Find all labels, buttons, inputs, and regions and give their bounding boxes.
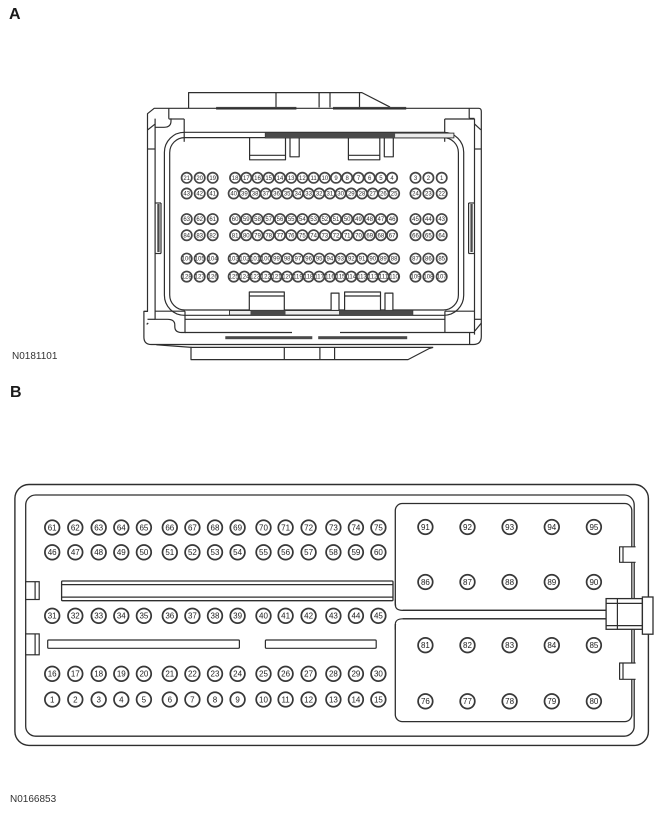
svg-text:1: 1 — [50, 695, 55, 704]
svg-text:52: 52 — [188, 548, 197, 557]
svg-text:45: 45 — [374, 612, 383, 621]
svg-text:13: 13 — [329, 695, 338, 704]
svg-text:39: 39 — [233, 612, 242, 621]
svg-text:49: 49 — [117, 548, 126, 557]
svg-text:93: 93 — [505, 523, 514, 532]
svg-text:94: 94 — [547, 523, 556, 532]
svg-text:63: 63 — [94, 523, 103, 532]
svg-text:35: 35 — [139, 612, 148, 621]
svg-text:85: 85 — [589, 641, 598, 650]
svg-text:66: 66 — [165, 523, 174, 532]
svg-text:69: 69 — [233, 523, 242, 532]
svg-text:15: 15 — [374, 695, 383, 704]
svg-text:92: 92 — [463, 523, 472, 532]
svg-text:67: 67 — [188, 523, 197, 532]
svg-text:53: 53 — [211, 548, 220, 557]
svg-text:82: 82 — [463, 641, 472, 650]
svg-text:42: 42 — [304, 612, 313, 621]
svg-text:43: 43 — [329, 612, 338, 621]
svg-text:55: 55 — [259, 548, 268, 557]
svg-text:46: 46 — [48, 548, 57, 557]
svg-text:79: 79 — [547, 697, 556, 706]
svg-text:78: 78 — [505, 697, 514, 706]
svg-text:86: 86 — [421, 578, 430, 587]
svg-text:68: 68 — [211, 523, 220, 532]
svg-text:23: 23 — [211, 670, 220, 679]
svg-text:48: 48 — [94, 548, 103, 557]
svg-text:87: 87 — [463, 578, 472, 587]
svg-text:51: 51 — [165, 548, 174, 557]
svg-text:73: 73 — [329, 523, 338, 532]
svg-text:19: 19 — [117, 670, 126, 679]
svg-text:10: 10 — [259, 695, 268, 704]
svg-text:27: 27 — [304, 670, 313, 679]
svg-text:9: 9 — [235, 695, 240, 704]
svg-text:29: 29 — [351, 670, 360, 679]
svg-text:20: 20 — [139, 670, 148, 679]
svg-text:25: 25 — [259, 670, 268, 679]
svg-text:89: 89 — [547, 578, 556, 587]
svg-text:4: 4 — [119, 695, 124, 704]
svg-text:81: 81 — [421, 641, 430, 650]
svg-text:40: 40 — [259, 612, 268, 621]
svg-text:57: 57 — [304, 548, 313, 557]
svg-text:6: 6 — [168, 695, 173, 704]
svg-text:54: 54 — [233, 548, 242, 557]
svg-text:64: 64 — [117, 523, 126, 532]
svg-text:8: 8 — [213, 695, 218, 704]
svg-text:58: 58 — [329, 548, 338, 557]
svg-text:59: 59 — [351, 548, 360, 557]
svg-text:34: 34 — [117, 612, 126, 621]
svg-text:56: 56 — [281, 548, 290, 557]
svg-text:71: 71 — [281, 523, 290, 532]
svg-text:90: 90 — [589, 578, 598, 587]
svg-text:32: 32 — [71, 612, 80, 621]
svg-text:44: 44 — [351, 612, 360, 621]
svg-text:36: 36 — [165, 612, 174, 621]
svg-text:18: 18 — [94, 670, 103, 679]
svg-text:74: 74 — [351, 523, 360, 532]
svg-text:14: 14 — [351, 695, 360, 704]
svg-text:30: 30 — [374, 670, 383, 679]
svg-text:72: 72 — [304, 523, 313, 532]
svg-text:47: 47 — [71, 548, 80, 557]
svg-text:70: 70 — [259, 523, 268, 532]
svg-text:11: 11 — [281, 695, 290, 704]
svg-text:60: 60 — [374, 548, 383, 557]
svg-text:65: 65 — [139, 523, 148, 532]
svg-text:31: 31 — [48, 612, 57, 621]
svg-text:50: 50 — [139, 548, 148, 557]
svg-text:16: 16 — [48, 670, 57, 679]
svg-text:61: 61 — [48, 523, 57, 532]
svg-text:3: 3 — [96, 695, 101, 704]
svg-text:17: 17 — [71, 670, 80, 679]
svg-text:38: 38 — [211, 612, 220, 621]
svg-text:88: 88 — [505, 578, 514, 587]
svg-text:28: 28 — [329, 670, 338, 679]
svg-text:84: 84 — [547, 641, 556, 650]
svg-text:76: 76 — [421, 697, 430, 706]
svg-text:33: 33 — [94, 612, 103, 621]
svg-text:91: 91 — [421, 523, 430, 532]
svg-text:80: 80 — [589, 697, 598, 706]
svg-text:26: 26 — [281, 670, 290, 679]
svg-text:83: 83 — [505, 641, 514, 650]
svg-text:75: 75 — [374, 523, 383, 532]
svg-text:95: 95 — [589, 523, 598, 532]
svg-text:41: 41 — [281, 612, 290, 621]
svg-text:77: 77 — [463, 697, 472, 706]
svg-text:22: 22 — [188, 670, 197, 679]
svg-text:5: 5 — [142, 695, 147, 704]
svg-text:12: 12 — [304, 695, 313, 704]
svg-text:24: 24 — [233, 670, 242, 679]
svg-text:21: 21 — [165, 670, 174, 679]
svg-text:37: 37 — [188, 612, 197, 621]
svg-text:62: 62 — [71, 523, 80, 532]
svg-text:7: 7 — [190, 695, 195, 704]
svg-text:2: 2 — [73, 695, 78, 704]
